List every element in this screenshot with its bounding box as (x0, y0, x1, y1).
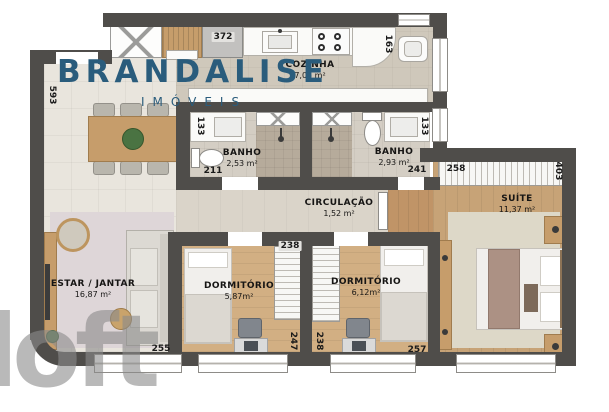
circulation-area: 1,52 m² (305, 209, 374, 218)
faucet-icon (278, 29, 282, 33)
dim-bedroom1-right: 247 (288, 332, 298, 351)
suite-window (456, 354, 556, 373)
dresser-knob-icon (442, 255, 448, 261)
wall-bed1-bed2 (300, 246, 312, 352)
bedroom2-blanket (381, 292, 427, 341)
dining-chair (120, 103, 142, 117)
bedroom1-desk-chair (238, 318, 262, 338)
wall-suite-right (562, 148, 576, 366)
dining-chair (120, 161, 142, 175)
bedroom1-area: 5,87m² (204, 292, 274, 301)
stove-burner-icon (318, 33, 325, 40)
suite-pillow (540, 292, 562, 322)
dim-bath1-width: 133 (195, 117, 205, 136)
bath2-label: BANHO 2,93 m² (375, 147, 414, 167)
kitchen-window (398, 14, 430, 26)
dim-bedroom1-closet: 238 (279, 241, 302, 251)
stove-burner-icon (318, 44, 325, 51)
wall-living-bath (176, 102, 190, 190)
bedroom2-label: DORMITÓRIO 6,12m² (331, 277, 401, 297)
bath1-door-opening (222, 177, 258, 190)
brand-logo: BRANDALISE (57, 54, 329, 90)
bedroom1-pillow (188, 252, 228, 268)
watermark-logo: loft (0, 302, 154, 402)
bedroom1-name: DORMITÓRIO (204, 281, 274, 291)
bath2-basin (390, 117, 418, 137)
bedroom2-desk-chair (346, 318, 370, 338)
bedroom1-label: DORMITÓRIO 5,87m² (204, 281, 274, 301)
wall-circ-top (424, 177, 440, 190)
bedroom2-area: 6,12m² (331, 288, 401, 297)
bedroom2-window (330, 354, 416, 373)
dim-kitchen-right: 163 (383, 35, 393, 54)
lamp-icon (552, 343, 559, 350)
suite-label: SUÍTE 11,37 m² (499, 194, 535, 214)
dining-chair (147, 161, 169, 175)
wall-circ-top (190, 177, 222, 190)
bedroom1-blanket (185, 294, 231, 343)
dim-bath1-bottom: 211 (204, 166, 223, 176)
bath2-toilet (364, 120, 381, 146)
wall-top (103, 13, 447, 27)
bath1-toilet (199, 149, 224, 167)
shower-arm-icon (330, 128, 332, 137)
laptop-icon (244, 341, 258, 351)
stove-burner-icon (334, 33, 341, 40)
bath2-window (432, 108, 448, 142)
suite-door-leaf (378, 192, 388, 230)
bath1-shower-glass (256, 112, 300, 126)
wall-bed2-suite (428, 235, 440, 355)
suite-pillow (540, 256, 562, 286)
stove-burner-icon (334, 44, 341, 51)
suite-name: SUÍTE (499, 194, 535, 204)
dim-suite-closet: 258 (447, 164, 466, 174)
bath1-name: BANHO (223, 148, 262, 158)
circulation-name: CIRCULAÇÃO (305, 198, 374, 208)
tub-basin (404, 41, 422, 57)
bath2-door-opening (398, 177, 424, 190)
circulation-label: CIRCULAÇÃO 1,52 m² (305, 198, 374, 218)
brand-subtitle: IMÓVEIS (141, 95, 247, 109)
sink-basin (268, 35, 292, 49)
floor-plan: ESTAR / JANTAR 16,87 m² COZINHA 7,05 m² … (0, 0, 609, 412)
wall-bath-divider (300, 112, 312, 182)
lamp-icon (552, 226, 559, 233)
shower-arm-icon (280, 128, 282, 137)
dim-suite-right: 403 (553, 162, 563, 181)
dim-left-wall: 593 (47, 86, 57, 105)
stove (312, 28, 350, 55)
wall-suite-top (420, 148, 576, 162)
dining-chair (93, 103, 115, 117)
dim-living-bottom: 255 (152, 344, 171, 354)
wall-circ-top (258, 177, 398, 190)
suite-throw-pillow (524, 284, 538, 312)
bedroom2-pillow (384, 249, 424, 266)
bedroom1-window (198, 354, 288, 373)
table-plant-icon (122, 128, 144, 150)
bath2-shower-glass (312, 112, 352, 126)
dining-chair (93, 161, 115, 175)
dim-fridge: 372 (212, 32, 235, 42)
bedroom2-door-opening (334, 232, 368, 246)
suite-bed-runner (488, 249, 520, 329)
suite-area: 11,37 m² (499, 205, 535, 214)
dim-bath2-width: 133 (419, 117, 429, 136)
bath1-area: 2,53 m² (223, 159, 262, 168)
wall-living-bed1 (168, 232, 182, 355)
bedroom1-door-opening (228, 232, 262, 246)
laptop-icon (352, 341, 366, 351)
bath1-label: BANHO 2,53 m² (223, 148, 262, 168)
bedroom2-name: DORMITÓRIO (331, 277, 401, 287)
dresser-knob-icon (442, 329, 448, 335)
dim-bedroom2-bottom: 257 (408, 345, 427, 355)
living-room-name: ESTAR / JANTAR (51, 279, 135, 289)
round-armchair (56, 218, 90, 252)
service-window (432, 38, 448, 92)
dim-bath2-bottom: 241 (408, 165, 427, 175)
bath1-basin (214, 117, 242, 137)
bath2-name: BANHO (375, 147, 414, 157)
dim-bedroom2-left: 238 (314, 332, 324, 351)
